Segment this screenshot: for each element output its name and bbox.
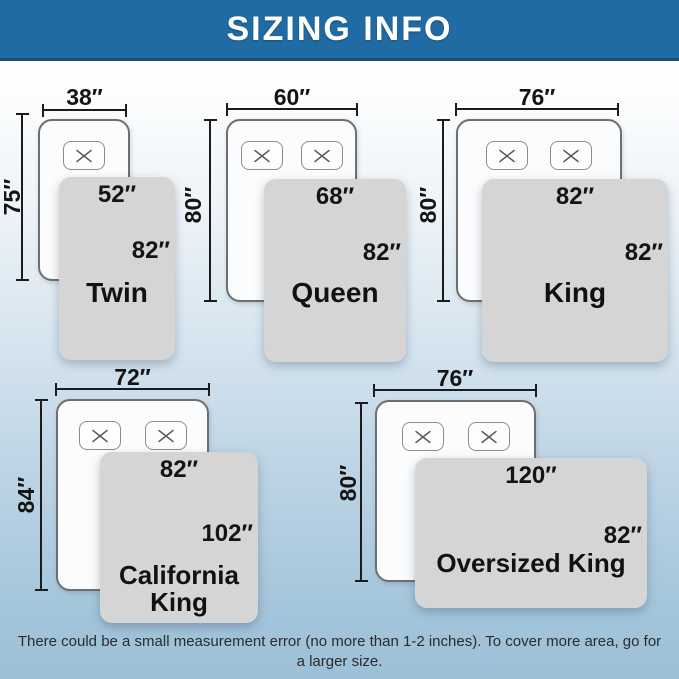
size-name-label: Queen <box>264 278 406 307</box>
pillow-icon <box>468 422 510 451</box>
mattress-outline <box>38 119 130 281</box>
length-dimension-arrow <box>355 402 368 582</box>
blanket-overlay: 68″ 82″ Queen <box>264 179 406 362</box>
x-mark-icon <box>412 429 434 445</box>
bed-width-label: 60″ <box>226 84 358 111</box>
x-mark-icon <box>311 148 333 164</box>
blanket-length-label: 102″ <box>201 520 253 548</box>
pillow-icon <box>402 422 444 451</box>
blanket-width-label: 120″ <box>415 462 647 490</box>
bed-length-label: 80″ <box>336 448 360 518</box>
x-mark-icon <box>478 429 500 445</box>
pillow-icon <box>63 141 105 170</box>
pillow-icon <box>79 421 121 450</box>
width-dimension-arrow <box>55 383 210 396</box>
blanket-length-label: 82″ <box>625 239 663 267</box>
blanket-width-label: 52″ <box>59 181 175 209</box>
header-banner: SIZING INFO <box>0 0 679 61</box>
mattress-outline <box>226 119 357 302</box>
x-mark-icon <box>560 148 582 164</box>
bed-length-label: 75″ <box>0 162 24 232</box>
size-card-california-king: 72″ 84″ 82″ 102″ California King <box>0 0 679 679</box>
bed-length-label: 80″ <box>181 170 205 240</box>
page-title: SIZING INFO <box>227 10 453 49</box>
x-mark-icon <box>496 148 518 164</box>
width-dimension-arrow <box>226 103 358 116</box>
blanket-overlay: 120″ 82″ Oversized King <box>415 458 647 608</box>
length-dimension-arrow <box>16 113 29 281</box>
size-name-label: King <box>482 278 668 307</box>
size-card-king: 76″ 80″ 82″ 82″ King <box>0 0 679 679</box>
width-dimension-arrow <box>455 103 619 116</box>
mattress-outline <box>456 119 622 302</box>
x-mark-icon <box>89 428 111 444</box>
pillow-icon <box>486 141 528 170</box>
width-dimension-arrow <box>373 384 537 397</box>
size-card-queen: 60″ 80″ 68″ 82″ Queen <box>0 0 679 679</box>
x-mark-icon <box>251 148 273 164</box>
blanket-overlay: 52″ 82″ Twin <box>59 177 175 360</box>
size-card-oversized-king: 76″ 80″ 120″ 82″ Oversized King <box>0 0 679 679</box>
length-dimension-arrow <box>35 399 48 591</box>
bed-width-label: 72″ <box>55 364 210 391</box>
bed-width-label: 76″ <box>455 84 619 111</box>
length-dimension-arrow <box>437 119 450 302</box>
length-dimension-arrow <box>204 119 217 302</box>
blanket-width-label: 82″ <box>482 183 668 211</box>
pillow-icon <box>550 141 592 170</box>
blanket-length-label: 82″ <box>604 522 642 550</box>
pillow-icon <box>241 141 283 170</box>
measurement-disclaimer: There could be a small measurement error… <box>18 632 662 673</box>
pillow-icon <box>301 141 343 170</box>
pillow-icon <box>145 421 187 450</box>
blanket-overlay: 82″ 102″ California King <box>100 452 258 623</box>
bed-length-label: 84″ <box>14 460 38 530</box>
blanket-length-label: 82″ <box>363 239 401 267</box>
size-name-label: California King <box>100 562 258 617</box>
size-card-twin: 38″ 75″ 52″ 82″ Twin <box>0 0 679 679</box>
sizing-infographic: SIZING INFO 38″ 75″ 52″ 82″ Twin 60″ 80″ <box>0 0 679 679</box>
blanket-overlay: 82″ 82″ King <box>482 179 668 362</box>
x-mark-icon <box>155 428 177 444</box>
mattress-outline <box>56 399 209 591</box>
blanket-length-label: 82″ <box>132 237 170 265</box>
width-dimension-arrow <box>42 104 127 117</box>
size-name-label: Oversized King <box>415 550 647 577</box>
mattress-outline <box>375 400 536 582</box>
bed-width-label: 38″ <box>42 84 127 111</box>
blanket-width-label: 68″ <box>264 183 406 211</box>
x-mark-icon <box>73 148 95 164</box>
blanket-width-label: 82″ <box>100 456 258 484</box>
bed-width-label: 76″ <box>373 365 537 392</box>
bed-length-label: 80″ <box>416 170 440 240</box>
size-name-label: Twin <box>59 278 175 307</box>
